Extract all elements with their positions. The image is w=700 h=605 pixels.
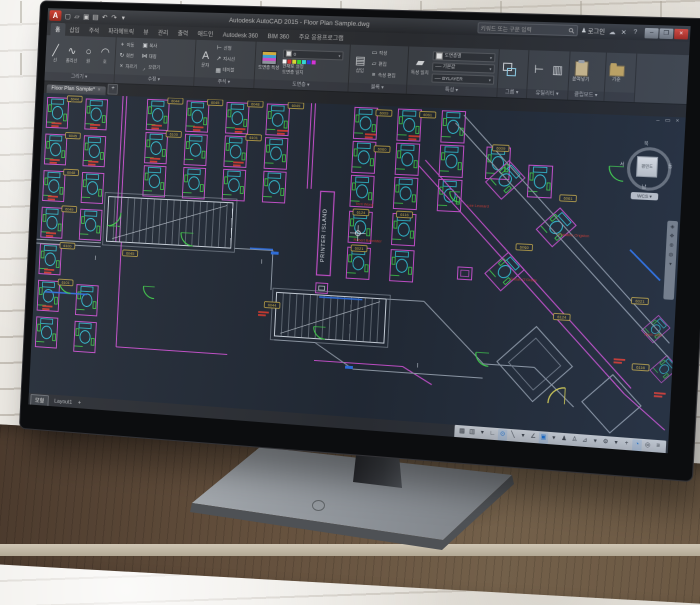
- annotate-0-icon: ⊢: [216, 45, 223, 52]
- new-file-icon[interactable]: ▢: [64, 12, 72, 20]
- svg-text:Terri Wong: Terri Wong: [355, 202, 373, 207]
- viewcube-face[interactable]: 평면도: [636, 156, 658, 178]
- ribbon-panel-2: A문자⊢선형↗지시선▦테이블주석 ▾: [194, 40, 256, 88]
- brick-joint: [20, 53, 22, 75]
- ribbon-tab-5[interactable]: 관리: [153, 26, 173, 39]
- window-controls: – ❒ ×: [644, 27, 688, 39]
- svg-text:6060: 6060: [378, 146, 387, 152]
- close-button[interactable]: ×: [674, 28, 688, 39]
- modify-5-label: 모깎기: [148, 65, 160, 71]
- layer-properties-icon: [261, 51, 277, 65]
- infocenter-search[interactable]: 키워드 또는 구문 입력: [477, 22, 578, 36]
- svg-text:6021: 6021: [355, 246, 364, 252]
- help-icon[interactable]: ?: [631, 29, 640, 36]
- clean-screen-button[interactable]: +: [621, 438, 631, 450]
- ribbon-panel-0: ╱선∿폴리선○원◠호그리기 ▾: [44, 35, 116, 83]
- floor-plan-drawing: PRINTER ISLANDIII60446045604860496100610…: [29, 93, 686, 441]
- navbar-more-icon[interactable]: ▾: [669, 262, 672, 267]
- svg-text:6044: 6044: [171, 98, 180, 103]
- linetype-dropdown-value: ── BYLAYER: [434, 75, 487, 82]
- draw-0-icon: ╱: [52, 44, 59, 58]
- svg-text:6060: 6060: [520, 244, 529, 250]
- dynamic-input-toggle[interactable]: ⊙: [498, 429, 508, 441]
- draw-3-label: 호: [103, 59, 107, 65]
- search-placeholder: 키워드 또는 구문 입력: [480, 24, 566, 35]
- model-tab[interactable]: 모형: [30, 393, 49, 406]
- panel-label-6[interactable]: 그룹 ▾: [497, 88, 526, 98]
- file-tab-label: Floor Plan Sample*: [51, 86, 95, 93]
- autocad-screen: A ▢▱▣▤↶↷▾ Autodesk AutoCAD 2015 - Floor …: [28, 8, 690, 453]
- qat-dropdown-icon[interactable]: ▾: [119, 14, 127, 22]
- orbit-icon[interactable]: ◍: [668, 253, 673, 258]
- viewcube[interactable]: 평면도 북 서 동 남: [622, 142, 671, 190]
- object-color-dropdown-value: 도면층별: [444, 53, 488, 60]
- stand-logo: [312, 500, 325, 511]
- measure-button[interactable]: ⊢: [531, 63, 547, 78]
- drawing-window-controls[interactable]: – ▭ ×: [656, 117, 681, 124]
- annotate-1-icon: ↗: [215, 56, 222, 63]
- ribbon-panel-3: 도면층 특성0▾현재로 설정도면층 일치도면층 ▾: [254, 42, 351, 92]
- grid-display-toggle[interactable]: ▦: [457, 426, 467, 438]
- svg-text:6021: 6021: [635, 298, 645, 304]
- minimize-button[interactable]: –: [644, 27, 658, 38]
- viewcube-north[interactable]: 북: [644, 141, 649, 147]
- ribbon-tab-1[interactable]: 삽입: [65, 23, 85, 36]
- desk-front-edge: [0, 544, 700, 556]
- open-file-icon[interactable]: ▱: [73, 12, 81, 20]
- svg-text:6009: 6009: [496, 145, 505, 151]
- modify-2-label: 자르기: [125, 64, 137, 70]
- match-properties-button-label: 특성 일치: [411, 70, 429, 77]
- isolate-objects-button[interactable]: ◎: [642, 440, 652, 452]
- print-icon[interactable]: ▤: [92, 13, 100, 21]
- insert-block-button-label: 삽입: [356, 68, 364, 74]
- annotate-0[interactable]: ⊢선형: [216, 42, 236, 54]
- drawing-canvas[interactable]: PRINTER ISLANDIII60446045604860496100610…: [29, 93, 686, 441]
- modify-3-icon: ▣: [142, 42, 149, 49]
- exchange-apps-icon[interactable]: ✕: [619, 28, 628, 36]
- zoom-icon[interactable]: ⊕: [669, 244, 674, 249]
- svg-text:6124: 6124: [557, 314, 567, 320]
- draw-0[interactable]: ╱선: [48, 44, 63, 64]
- ribbon-panel-1: +이동↻회전×자르기▣복사⋈대칭◞모깎기수정 ▾: [114, 37, 196, 86]
- block-2-icon: ≡: [370, 73, 377, 79]
- workspace-dropdown[interactable]: ▾: [611, 438, 621, 450]
- attach-base-button[interactable]: 기준: [608, 62, 625, 83]
- annotate-1-label: 지시선: [223, 56, 235, 62]
- svg-text:6048: 6048: [67, 170, 75, 175]
- svg-text:6116: 6116: [400, 212, 409, 218]
- osnap-dropdown[interactable]: ▾: [549, 433, 559, 445]
- insert-block-button-icon: ▤: [355, 54, 366, 68]
- monitor: A ▢▱▣▤↶↷▾ Autodesk AutoCAD 2015 - Floor …: [20, 1, 700, 481]
- svg-text:6100: 6100: [63, 243, 71, 248]
- ribbon-tab-3[interactable]: 파라메트릭: [103, 24, 139, 38]
- svg-text:6100: 6100: [169, 132, 178, 137]
- search-icon: [569, 27, 576, 33]
- full-navigation-wheel-icon[interactable]: ◈: [670, 225, 674, 230]
- ribbon-panel-7: ⊢▥유틸리티 ▾: [527, 50, 571, 99]
- polar-tracking-dropdown[interactable]: ▾: [518, 431, 528, 443]
- svg-text:6045: 6045: [126, 251, 135, 256]
- block-2-label: 속성 편집: [378, 73, 396, 80]
- svg-text:6049: 6049: [291, 103, 300, 108]
- block-1[interactable]: ▱편집: [370, 59, 396, 71]
- quick-select-button[interactable]: ▥: [549, 63, 565, 78]
- layer-dropdown-dropdown-icon: ▾: [338, 53, 340, 58]
- svg-text:6116: 6116: [636, 364, 645, 370]
- modify-4[interactable]: ⋈대칭: [141, 51, 161, 63]
- modify-0[interactable]: +이동: [119, 39, 139, 51]
- workspace-switching-button[interactable]: ⚙: [601, 437, 611, 449]
- lineweight-dropdown-dropdown-icon: ▾: [489, 66, 491, 71]
- viewcube-west[interactable]: 서: [620, 161, 625, 167]
- infer-constraints-toggle[interactable]: ∟: [488, 428, 498, 440]
- svg-text:6061: 6061: [563, 195, 572, 201]
- modify-0-icon: +: [119, 42, 126, 48]
- panel-label-7[interactable]: 유틸리티 ▾: [527, 89, 568, 100]
- svg-text:6045: 6045: [211, 100, 220, 105]
- draw-3-icon: ◠: [100, 46, 110, 60]
- folder-icon: [609, 65, 625, 77]
- redo-icon[interactable]: ↷: [110, 13, 118, 21]
- quick-select-button-icon: ▥: [552, 63, 563, 78]
- isometric-drafting-toggle[interactable]: ∠: [528, 431, 538, 443]
- undo-icon[interactable]: ↶: [101, 13, 109, 21]
- ribbon-panel-9: 기준: [604, 53, 637, 102]
- object-color-dropdown-dropdown-icon: ▾: [490, 55, 492, 60]
- text-button-icon: A: [202, 49, 210, 63]
- ribbon-panel-5: ▰특성 일치도면층별▾── 기본값▾── BYLAYER▾특성 ▾: [407, 46, 500, 97]
- ortho-mode-toggle[interactable]: ╲: [508, 430, 518, 442]
- modify-5[interactable]: ◞모깎기: [141, 62, 161, 74]
- ribbon-panel-8: 붙여넣기클립보드 ▾: [568, 51, 607, 101]
- svg-text:6048: 6048: [251, 101, 260, 106]
- graphics-performance-toggle[interactable]: ◔: [632, 439, 642, 451]
- text-button[interactable]: A문자: [198, 49, 213, 69]
- layer-properties-label: 도면층 특성: [258, 65, 279, 72]
- draw-1-icon: ∿: [67, 45, 76, 59]
- block-0-icon: ▭: [371, 49, 378, 56]
- panel-label-9[interactable]: [604, 92, 634, 102]
- svg-text:6044: 6044: [268, 302, 278, 308]
- attach-base-label: 기준: [612, 77, 621, 83]
- ribbon-tab-7[interactable]: 애드인: [193, 27, 219, 41]
- draw-2-icon: ○: [85, 45, 92, 59]
- modify-4-icon: ⋈: [141, 53, 148, 60]
- svg-text:6061: 6061: [423, 112, 432, 118]
- sign-in-label: 로그인: [587, 26, 605, 36]
- annotate-2[interactable]: ▦테이블: [215, 65, 235, 77]
- svg-text:6049: 6049: [65, 206, 73, 211]
- modify-5-icon: ◞: [141, 64, 148, 71]
- modify-1-label: 회전: [126, 53, 134, 59]
- svg-text:6101: 6101: [249, 135, 258, 140]
- snap-mode-toggle[interactable]: ▥: [467, 427, 477, 439]
- annotation-visibility-toggle[interactable]: ♟: [559, 434, 569, 446]
- layer-match-button[interactable]: 도면층 일치: [282, 69, 343, 77]
- layer-properties-button[interactable]: 도면층 특성: [258, 51, 280, 72]
- draw-3[interactable]: ◠호: [98, 46, 113, 66]
- block-1-label: 편집: [378, 62, 387, 68]
- scale-dropdown[interactable]: ▾: [590, 436, 600, 448]
- group-button[interactable]: [501, 63, 517, 76]
- annotate-2-icon: ▦: [215, 67, 222, 74]
- object-snap-toggle[interactable]: ▣: [539, 432, 549, 444]
- new-drawing-tab-button[interactable]: +: [108, 84, 119, 95]
- annotate-0-label: 선형: [224, 45, 232, 51]
- modify-3[interactable]: ▣복사: [142, 40, 162, 52]
- user-icon: ♟: [581, 27, 587, 34]
- linetype-dropdown-dropdown-icon: ▾: [489, 77, 491, 82]
- ribbon-panel-4: ▤삽입▭작성▱편집≡속성 편집블록 ▾: [348, 45, 409, 94]
- modify-2[interactable]: ×자르기: [118, 61, 138, 73]
- layer-dropdown-value: 0: [294, 51, 337, 57]
- ribbon-tab-4[interactable]: 뷰: [138, 25, 153, 38]
- match-properties-button[interactable]: ▰특성 일치: [411, 56, 430, 77]
- file-tab-close-icon[interactable]: ×: [98, 87, 101, 93]
- text-button-label: 문자: [201, 63, 209, 69]
- layout1-tab[interactable]: Layout1: [51, 397, 75, 406]
- modify-3-label: 복사: [149, 43, 157, 49]
- measure-button-icon: ⊢: [534, 63, 545, 78]
- object-color-dropdown[interactable]: 도면층별▾: [432, 51, 495, 62]
- linetype-dropdown[interactable]: ── BYLAYER▾: [431, 73, 494, 84]
- wcs-button[interactable]: WCS ▾: [631, 192, 659, 201]
- draw-0-label: 선: [53, 58, 57, 64]
- viewcube-south[interactable]: 남: [642, 184, 647, 190]
- autodesk360-icon[interactable]: ☁: [608, 27, 617, 35]
- application-menu-button[interactable]: A: [49, 10, 61, 21]
- restore-button[interactable]: ❒: [659, 28, 673, 39]
- match-properties-button-icon: ▰: [416, 56, 425, 70]
- draw-1[interactable]: ∿폴리선: [65, 44, 80, 64]
- viewcube-east[interactable]: 동: [668, 164, 673, 170]
- panel-label-8[interactable]: 클립보드 ▾: [568, 90, 604, 101]
- draw-2-label: 원: [86, 59, 90, 65]
- block-0[interactable]: ▭작성: [371, 47, 397, 59]
- svg-text:6101: 6101: [61, 280, 69, 285]
- block-0-label: 작성: [379, 50, 388, 56]
- block-2[interactable]: ≡속성 편집: [370, 70, 396, 82]
- pan-icon[interactable]: ✥: [670, 234, 675, 239]
- add-layout-button[interactable]: +: [78, 400, 86, 406]
- annotation-scale-button[interactable]: ⊿: [580, 435, 590, 447]
- paste-label: 붙여넣기: [572, 76, 589, 83]
- svg-text:6124: 6124: [356, 210, 366, 216]
- annotate-2-label: 테이블: [222, 68, 234, 74]
- block-1-icon: ▱: [370, 61, 377, 68]
- ribbon-panel-6: 그룹 ▾: [497, 49, 529, 98]
- ribbon-tab-6[interactable]: 출력: [173, 26, 194, 39]
- ribbon-tab-2[interactable]: 주석: [84, 24, 104, 37]
- ribbon-tab-0[interactable]: 홈: [50, 23, 65, 36]
- svg-text:6009: 6009: [379, 110, 388, 115]
- modify-1[interactable]: ↻회전: [118, 50, 138, 62]
- quick-access-toolbar: ▢▱▣▤↶↷▾: [64, 12, 127, 22]
- annotation-autoscale-toggle[interactable]: ♙: [569, 434, 579, 446]
- insert-block-button[interactable]: ▤삽입: [352, 54, 368, 75]
- sign-in-button[interactable]: ♟ 로그인: [581, 26, 605, 36]
- photo-scene: { "window": { "app_button_label": "A", "…: [0, 0, 700, 556]
- snap-dropdown[interactable]: ▾: [477, 428, 487, 440]
- svg-text:6045: 6045: [69, 133, 77, 138]
- draw-2[interactable]: ○원: [81, 45, 96, 65]
- modify-1-icon: ↻: [118, 52, 125, 59]
- brick-joint: [20, 1, 22, 23]
- annotate-1[interactable]: ↗지시선: [215, 54, 235, 66]
- modify-4-label: 대칭: [149, 54, 157, 60]
- lineweight-dropdown-value: ── 기본값: [435, 63, 488, 71]
- customization-button[interactable]: ≡: [653, 441, 663, 453]
- draw-1-label: 폴리선: [66, 58, 78, 64]
- svg-text:6044: 6044: [71, 96, 80, 101]
- modify-0-label: 이동: [126, 42, 134, 48]
- modify-2-icon: ×: [118, 64, 125, 70]
- paste-button[interactable]: 붙여넣기: [572, 60, 590, 82]
- lineweight-dropdown[interactable]: ── 기본값▾: [432, 62, 495, 73]
- save-icon[interactable]: ▣: [82, 13, 90, 21]
- paste-icon: [574, 60, 588, 76]
